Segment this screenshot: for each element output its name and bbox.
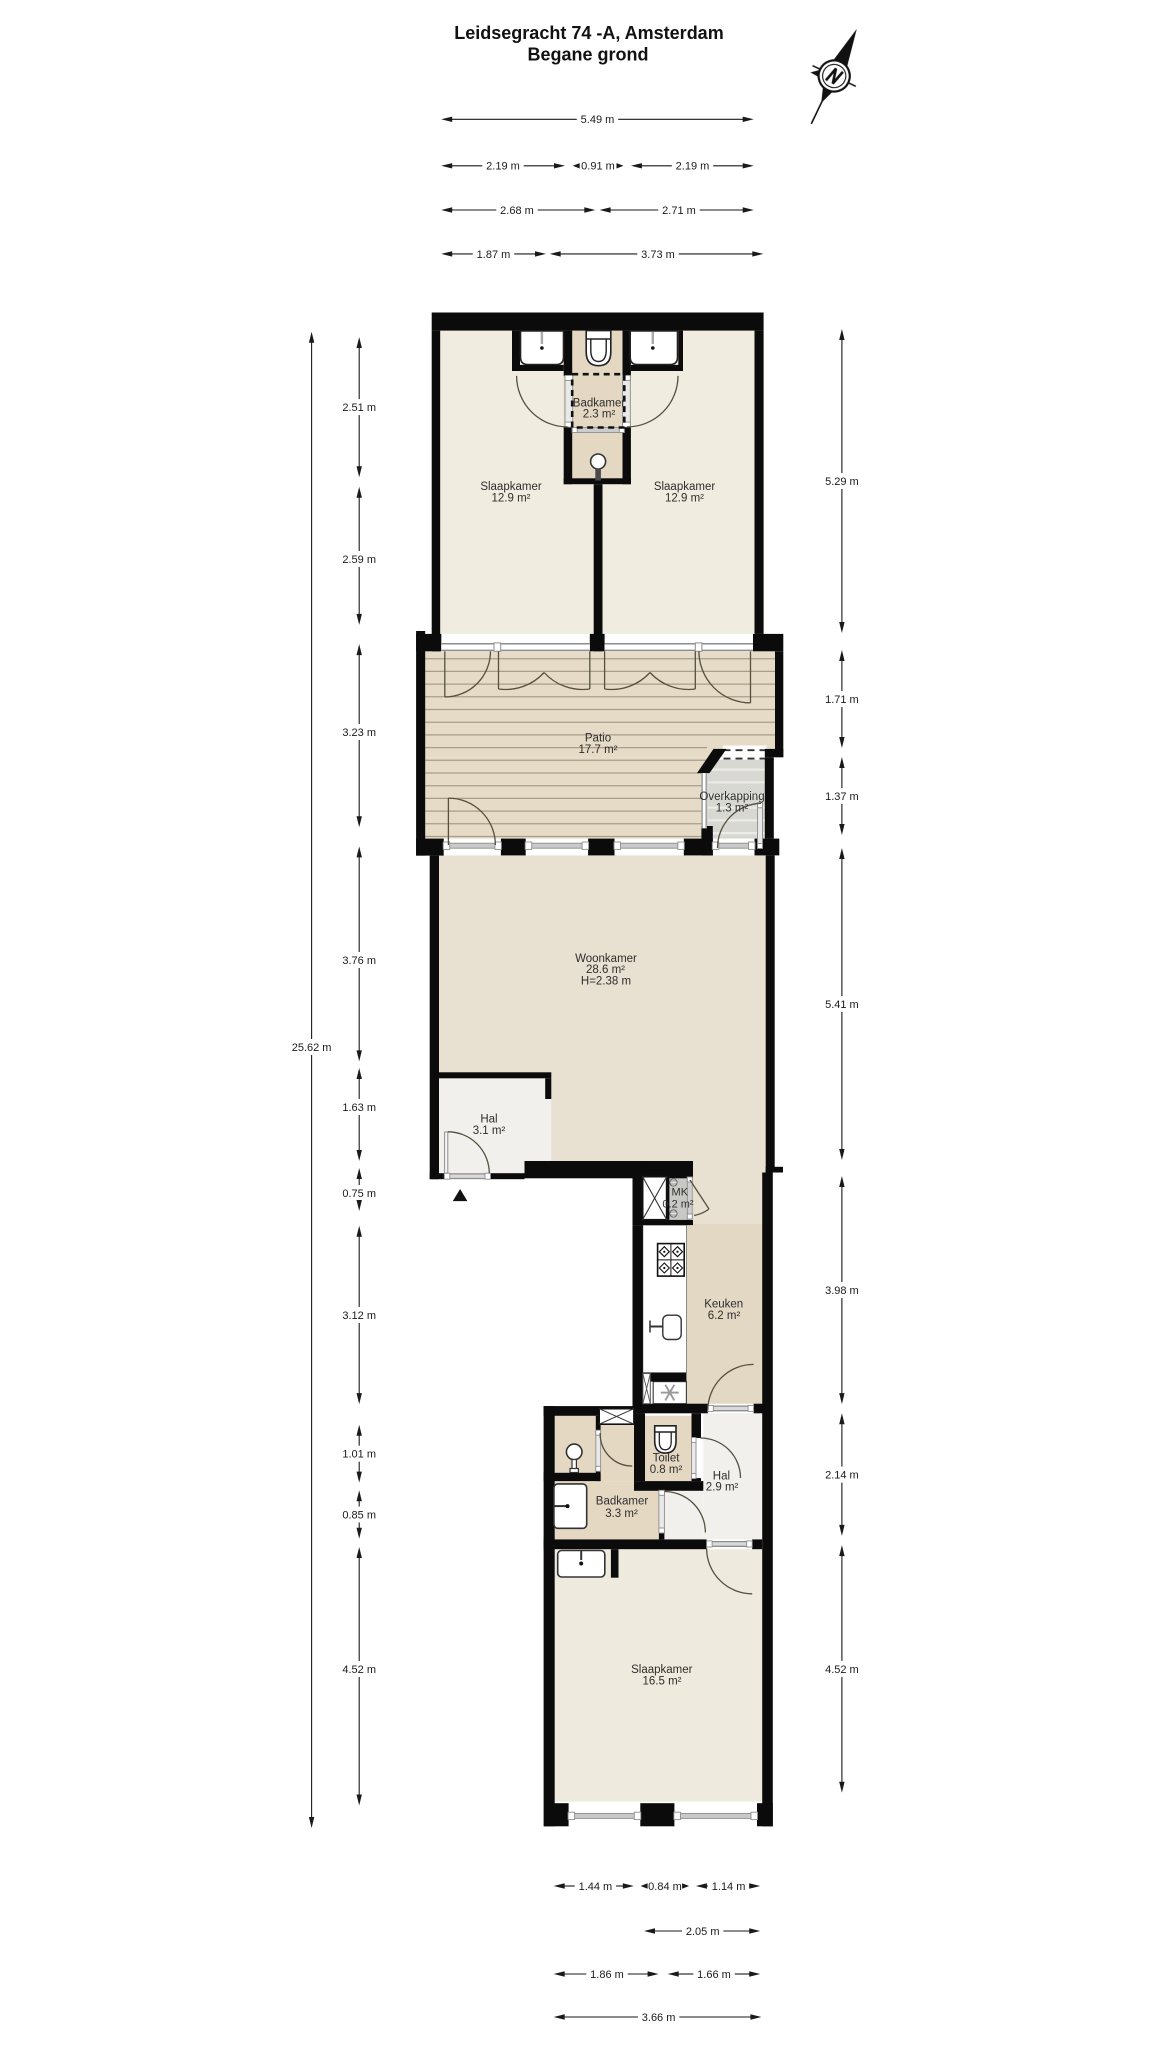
- svg-text:3.1 m²: 3.1 m²: [473, 1125, 506, 1137]
- svg-text:5.29 m: 5.29 m: [825, 476, 859, 488]
- svg-text:3.66 m: 3.66 m: [642, 2012, 676, 2024]
- svg-text:17.7 m²: 17.7 m²: [579, 744, 618, 756]
- svg-text:Woonkamer: Woonkamer: [575, 953, 637, 965]
- svg-text:Toilet: Toilet: [653, 1453, 681, 1465]
- svg-text:1.63 m: 1.63 m: [342, 1102, 376, 1114]
- svg-text:2.51 m: 2.51 m: [342, 402, 376, 414]
- svg-text:Slaapkamer: Slaapkamer: [631, 1664, 693, 1676]
- svg-text:25.62 m: 25.62 m: [292, 1042, 332, 1054]
- svg-text:2.05 m: 2.05 m: [686, 1926, 720, 1938]
- svg-text:2.19 m: 2.19 m: [486, 161, 520, 173]
- svg-text:6.2 m²: 6.2 m²: [708, 1310, 741, 1322]
- svg-text:Begane grond: Begane grond: [527, 45, 648, 65]
- svg-text:28.6 m²: 28.6 m²: [586, 964, 625, 976]
- svg-text:MK: MK: [672, 1187, 689, 1199]
- svg-text:Hal: Hal: [480, 1114, 497, 1126]
- svg-text:0.85 m: 0.85 m: [342, 1509, 376, 1521]
- svg-text:3.98 m: 3.98 m: [825, 1285, 859, 1297]
- svg-text:5.49 m: 5.49 m: [581, 114, 615, 126]
- svg-text:1.44 m: 1.44 m: [579, 1881, 613, 1893]
- svg-text:1.87 m: 1.87 m: [477, 249, 511, 261]
- svg-text:0.2 m²: 0.2 m²: [662, 1198, 694, 1210]
- svg-text:1.71 m: 1.71 m: [825, 694, 859, 706]
- svg-text:Slaapkamer: Slaapkamer: [654, 481, 716, 493]
- svg-text:3.73 m: 3.73 m: [641, 249, 675, 261]
- svg-text:1.37 m: 1.37 m: [825, 791, 859, 803]
- svg-text:2.3 m²: 2.3 m²: [583, 409, 616, 421]
- svg-text:3.76 m: 3.76 m: [342, 955, 376, 967]
- svg-text:Slaapkamer: Slaapkamer: [480, 481, 542, 493]
- svg-text:5.41 m: 5.41 m: [825, 999, 859, 1011]
- svg-text:Patio: Patio: [585, 733, 611, 745]
- svg-text:2.9 m²: 2.9 m²: [706, 1482, 739, 1494]
- svg-text:1.66 m: 1.66 m: [697, 1969, 731, 1981]
- svg-text:2.19 m: 2.19 m: [676, 161, 710, 173]
- svg-text:4.52 m: 4.52 m: [825, 1664, 859, 1676]
- svg-text:Overkapping: Overkapping: [699, 791, 764, 803]
- svg-text:1.86 m: 1.86 m: [590, 1969, 624, 1981]
- svg-text:16.5 m²: 16.5 m²: [643, 1675, 682, 1687]
- svg-text:2.59 m: 2.59 m: [342, 554, 376, 566]
- svg-text:12.9 m²: 12.9 m²: [492, 493, 531, 505]
- svg-text:1.01 m: 1.01 m: [342, 1449, 376, 1461]
- svg-text:0.84 m: 0.84 m: [648, 1881, 682, 1893]
- svg-text:2.68 m: 2.68 m: [500, 205, 534, 217]
- svg-text:Badkamer: Badkamer: [596, 1496, 649, 1508]
- svg-text:3.23 m: 3.23 m: [342, 727, 376, 739]
- svg-text:Leidsegracht 74 -A, Amsterdam: Leidsegracht 74 -A, Amsterdam: [454, 23, 723, 43]
- svg-text:Keuken: Keuken: [704, 1298, 743, 1310]
- svg-text:1.3 m²: 1.3 m²: [716, 803, 749, 815]
- svg-text:2.14 m: 2.14 m: [825, 1470, 859, 1482]
- svg-text:0.91 m: 0.91 m: [581, 161, 615, 173]
- svg-text:0.75 m: 0.75 m: [342, 1188, 376, 1200]
- svg-text:3.3 m²: 3.3 m²: [605, 1508, 638, 1520]
- svg-text:4.52 m: 4.52 m: [342, 1664, 376, 1676]
- svg-text:1.14 m: 1.14 m: [712, 1881, 746, 1893]
- svg-text:2.71 m: 2.71 m: [662, 205, 696, 217]
- svg-text:0.8 m²: 0.8 m²: [650, 1464, 683, 1476]
- svg-text:H=2.38 m: H=2.38 m: [581, 975, 631, 987]
- svg-text:12.9 m²: 12.9 m²: [665, 493, 704, 505]
- svg-text:3.12 m: 3.12 m: [342, 1310, 376, 1322]
